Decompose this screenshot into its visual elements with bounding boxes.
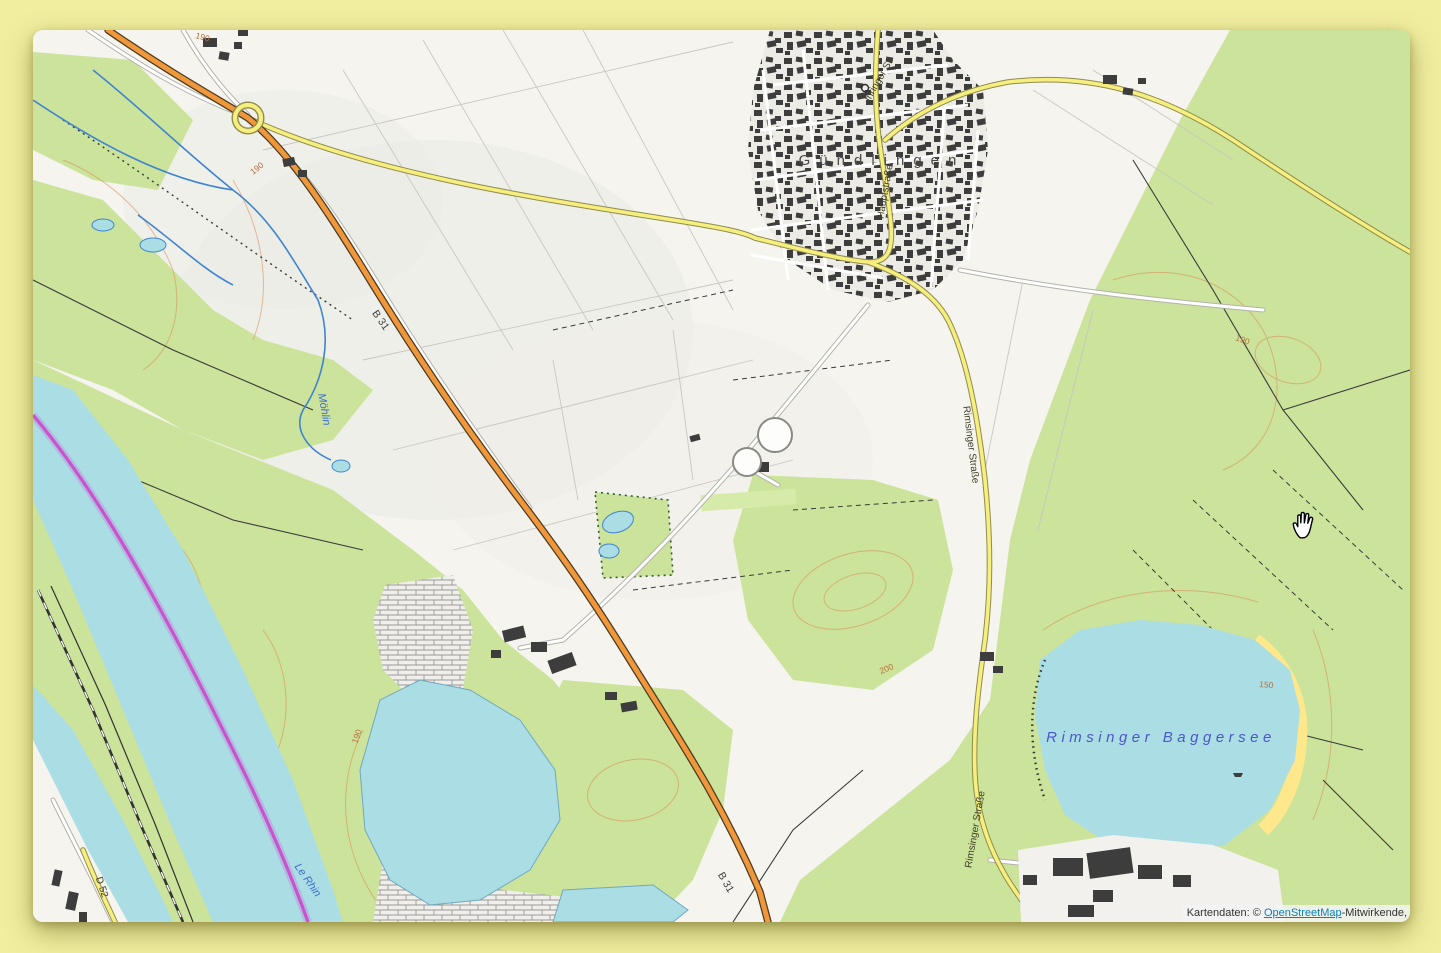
attribution-prefix: Kartendaten: ©: [1187, 907, 1264, 919]
openstreetmap-link[interactable]: OpenStreetMap: [1264, 907, 1342, 919]
town-label: Gündlingen: [799, 152, 966, 169]
attribution-bar: Kartendaten: © OpenStreetMap-Mitwirkende…: [1181, 905, 1410, 922]
contour-label: 150: [1259, 679, 1274, 690]
attribution-suffix: -Mitwirkende,: [1342, 907, 1407, 919]
lake-label: Rimsinger Baggersee: [1046, 729, 1276, 746]
map-canvas[interactable]: Gündlingen Rimsinger Baggersee Hauptstra…: [33, 30, 1410, 922]
page: { "window": { "type": "topographic-map-v…: [0, 0, 1441, 953]
map-viewport[interactable]: Gündlingen Rimsinger Baggersee Hauptstra…: [33, 30, 1410, 922]
